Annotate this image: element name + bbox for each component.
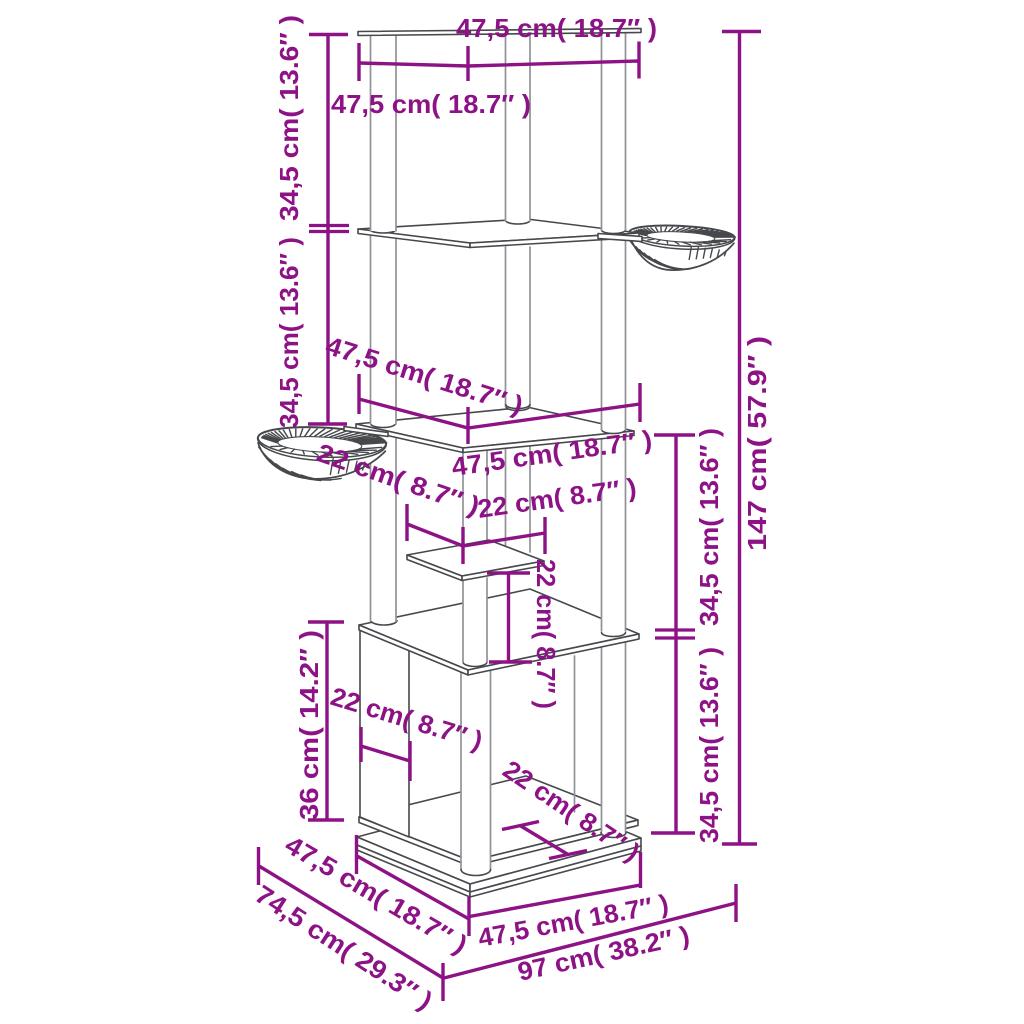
svg-text:36 cm( 14.2″ ): 36 cm( 14.2″ ) (294, 630, 324, 820)
svg-text:47,5 cm( 18.7″ ): 47,5 cm( 18.7″ ) (456, 13, 657, 43)
svg-text:147 cm( 57.9″ ): 147 cm( 57.9″ ) (742, 336, 772, 551)
svg-text:47,5 cm( 18.7″ ): 47,5 cm( 18.7″ ) (331, 89, 531, 119)
svg-text:34,5 cm( 13.6″ ): 34,5 cm( 13.6″ ) (274, 15, 304, 221)
svg-text:34,5 cm( 13.6″ ): 34,5 cm( 13.6″ ) (694, 647, 724, 843)
svg-text:34,5 cm( 13.6″ ): 34,5 cm( 13.6″ ) (694, 428, 724, 626)
svg-text:34,5 cm( 13.6″ ): 34,5 cm( 13.6″ ) (274, 237, 304, 428)
svg-text:22 cm( 8.7″ ): 22 cm( 8.7″ ) (531, 559, 561, 709)
